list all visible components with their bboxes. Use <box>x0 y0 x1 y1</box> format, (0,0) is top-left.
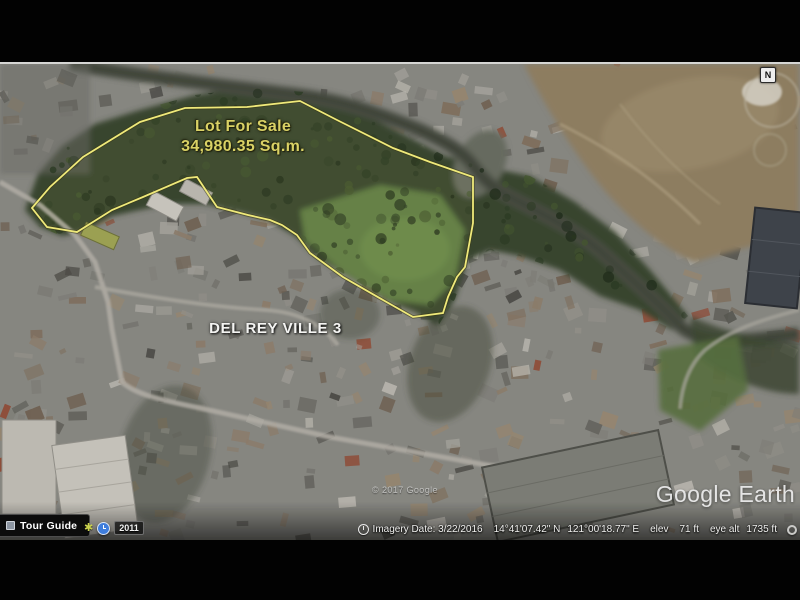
letterbox-top <box>0 0 800 62</box>
tour-guide-icon <box>6 521 15 530</box>
elev-label: elev <box>650 524 668 535</box>
subdivision-label: DEL REY VILLE 3 <box>188 320 363 337</box>
latitude-readout: 14°41'07.42" N <box>494 524 561 535</box>
google-earth-logo: Google Earth <box>656 481 795 508</box>
sun-icon: ✱ <box>84 523 93 534</box>
compass-north-label: N <box>765 70 772 80</box>
google-earth-window: Lot For Sale 34,980.35 Sq.m. DEL REY VIL… <box>0 0 800 600</box>
lot-for-sale-title: Lot For Sale <box>158 117 328 137</box>
tour-guide-button[interactable]: Tour Guide <box>0 514 90 537</box>
copyright-watermark: © 2017 Google <box>340 485 470 495</box>
lot-for-sale-label: Lot For Sale 34,980.35 Sq.m. <box>158 117 328 157</box>
imagery-date: Imagery Date: 3/22/2016 <box>373 524 483 535</box>
longitude-readout: 121°00'18.77" E <box>567 524 639 535</box>
satellite-imagery <box>0 64 800 540</box>
history-clock-icon[interactable] <box>97 522 110 535</box>
status-bar: Imagery Date: 3/22/2016 14°41'07.42" N 1… <box>358 524 797 535</box>
imagery-date-clock-icon <box>358 524 369 535</box>
letterbox-bottom <box>0 540 800 600</box>
streaming-indicator-icon <box>787 525 797 535</box>
historical-imagery-widget[interactable]: ✱ 2011 <box>84 521 144 535</box>
eye-alt-value: 1735 ft <box>746 524 777 535</box>
lot-area-value: 34,980.35 Sq.m. <box>158 137 328 157</box>
tour-guide-label: Tour Guide <box>20 520 77 532</box>
elev-value: 71 ft <box>679 524 698 535</box>
imagery-year-badge[interactable]: 2011 <box>114 521 144 535</box>
compass-north-indicator[interactable]: N <box>760 67 776 83</box>
map-viewport[interactable]: Lot For Sale 34,980.35 Sq.m. DEL REY VIL… <box>0 62 800 540</box>
eye-alt-label: eye alt <box>710 524 739 535</box>
